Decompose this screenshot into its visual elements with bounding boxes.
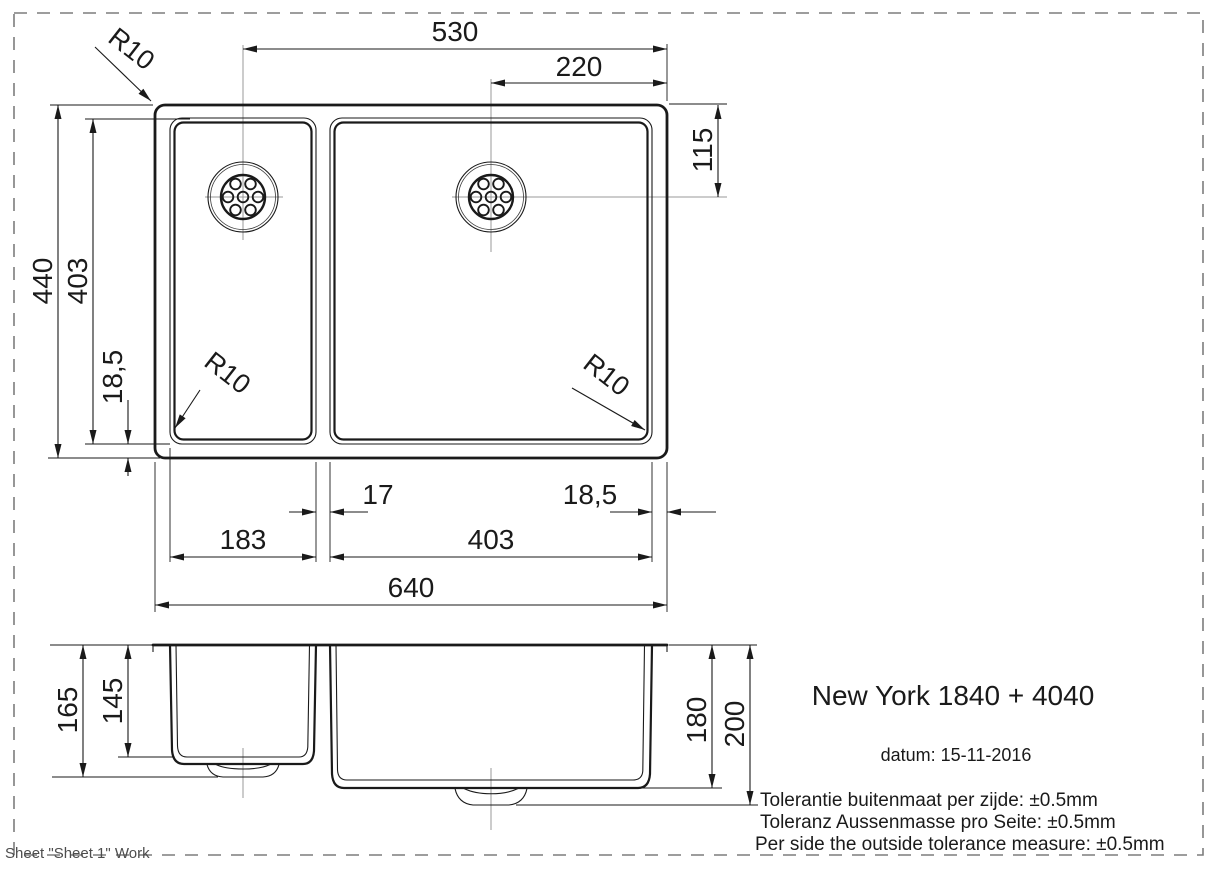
sink-profile <box>153 645 667 805</box>
technical-drawing: 530 220 115 440 403 18,5 17 18,5 183 403… <box>0 0 1220 870</box>
extension-lines <box>48 44 727 612</box>
radius-label-outer: R10 <box>103 22 161 76</box>
dim-403-horizontal: 403 <box>468 524 515 555</box>
dim-183: 183 <box>220 524 267 555</box>
product-title: New York 1840 + 4040 <box>812 680 1095 711</box>
dim-145: 145 <box>97 678 128 725</box>
drawing-sheet: 530 220 115 440 403 18,5 17 18,5 183 403… <box>0 0 1220 870</box>
dim-403-vertical: 403 <box>62 258 93 305</box>
radius-label-left-bowl: R10 <box>199 346 257 400</box>
dim-18-5-horizontal: 18,5 <box>563 479 618 510</box>
dim-530: 530 <box>432 16 479 47</box>
top-view: 530 220 115 440 403 18,5 17 18,5 183 403… <box>27 16 727 612</box>
sink-outer-edge <box>155 105 667 458</box>
dim-17: 17 <box>362 479 393 510</box>
tolerance-line-de: Toleranz Aussenmasse pro Seite: ±0.5mm <box>760 812 1116 833</box>
dim-165: 165 <box>52 687 83 734</box>
dim-220: 220 <box>556 51 603 82</box>
dim-440: 440 <box>27 258 58 305</box>
tolerance-line-nl: Tolerantie buitenmaat per zijde: ±0.5mm <box>760 790 1098 811</box>
dim-640: 640 <box>388 572 435 603</box>
tolerance-line-en: Per side the outside tolerance measure: … <box>755 834 1165 855</box>
date-label: datum: 15-11-2016 <box>881 745 1032 765</box>
page-border <box>14 13 1203 855</box>
dim-180: 180 <box>681 697 712 744</box>
dimension-lines <box>58 49 718 605</box>
dim-115: 115 <box>687 128 718 173</box>
sheet-note: Sheet "Sheet 1" Work <box>5 845 150 862</box>
radius-label-right-bowl: R10 <box>578 348 636 402</box>
dim-18-5-vertical: 18,5 <box>97 350 128 405</box>
dim-200: 200 <box>719 701 750 748</box>
title-block: New York 1840 + 4040 datum: 15-11-2016 T… <box>755 680 1165 855</box>
section-view: 165 145 180 200 <box>50 645 758 830</box>
